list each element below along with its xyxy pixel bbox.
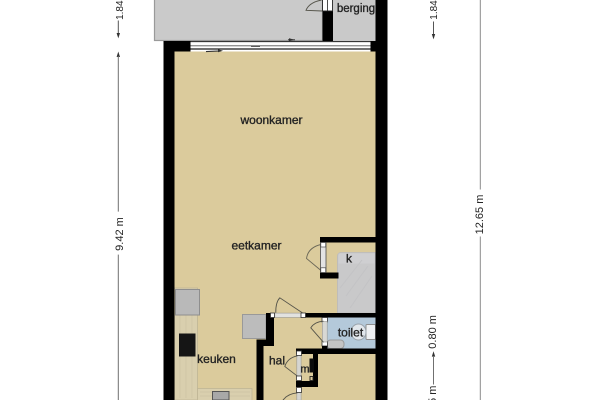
svg-text:k: k bbox=[346, 252, 353, 266]
svg-text:1.84: 1.84 bbox=[115, 0, 126, 20]
svg-text:0.80 m: 0.80 m bbox=[427, 315, 439, 349]
svg-text:keuken: keuken bbox=[197, 352, 236, 366]
svg-text:5 m: 5 m bbox=[427, 386, 439, 400]
svg-text:9.42 m: 9.42 m bbox=[114, 217, 126, 251]
svg-text:woonkamer: woonkamer bbox=[239, 113, 302, 127]
svg-text:12.65 m: 12.65 m bbox=[474, 195, 486, 235]
svg-text:m: m bbox=[300, 364, 309, 376]
svg-text:eetkamer: eetkamer bbox=[231, 239, 281, 253]
svg-text:1.84: 1.84 bbox=[429, 0, 440, 20]
svg-text:berging: berging bbox=[337, 3, 375, 15]
svg-text:hal: hal bbox=[269, 354, 285, 368]
svg-text:toilet: toilet bbox=[338, 326, 364, 340]
